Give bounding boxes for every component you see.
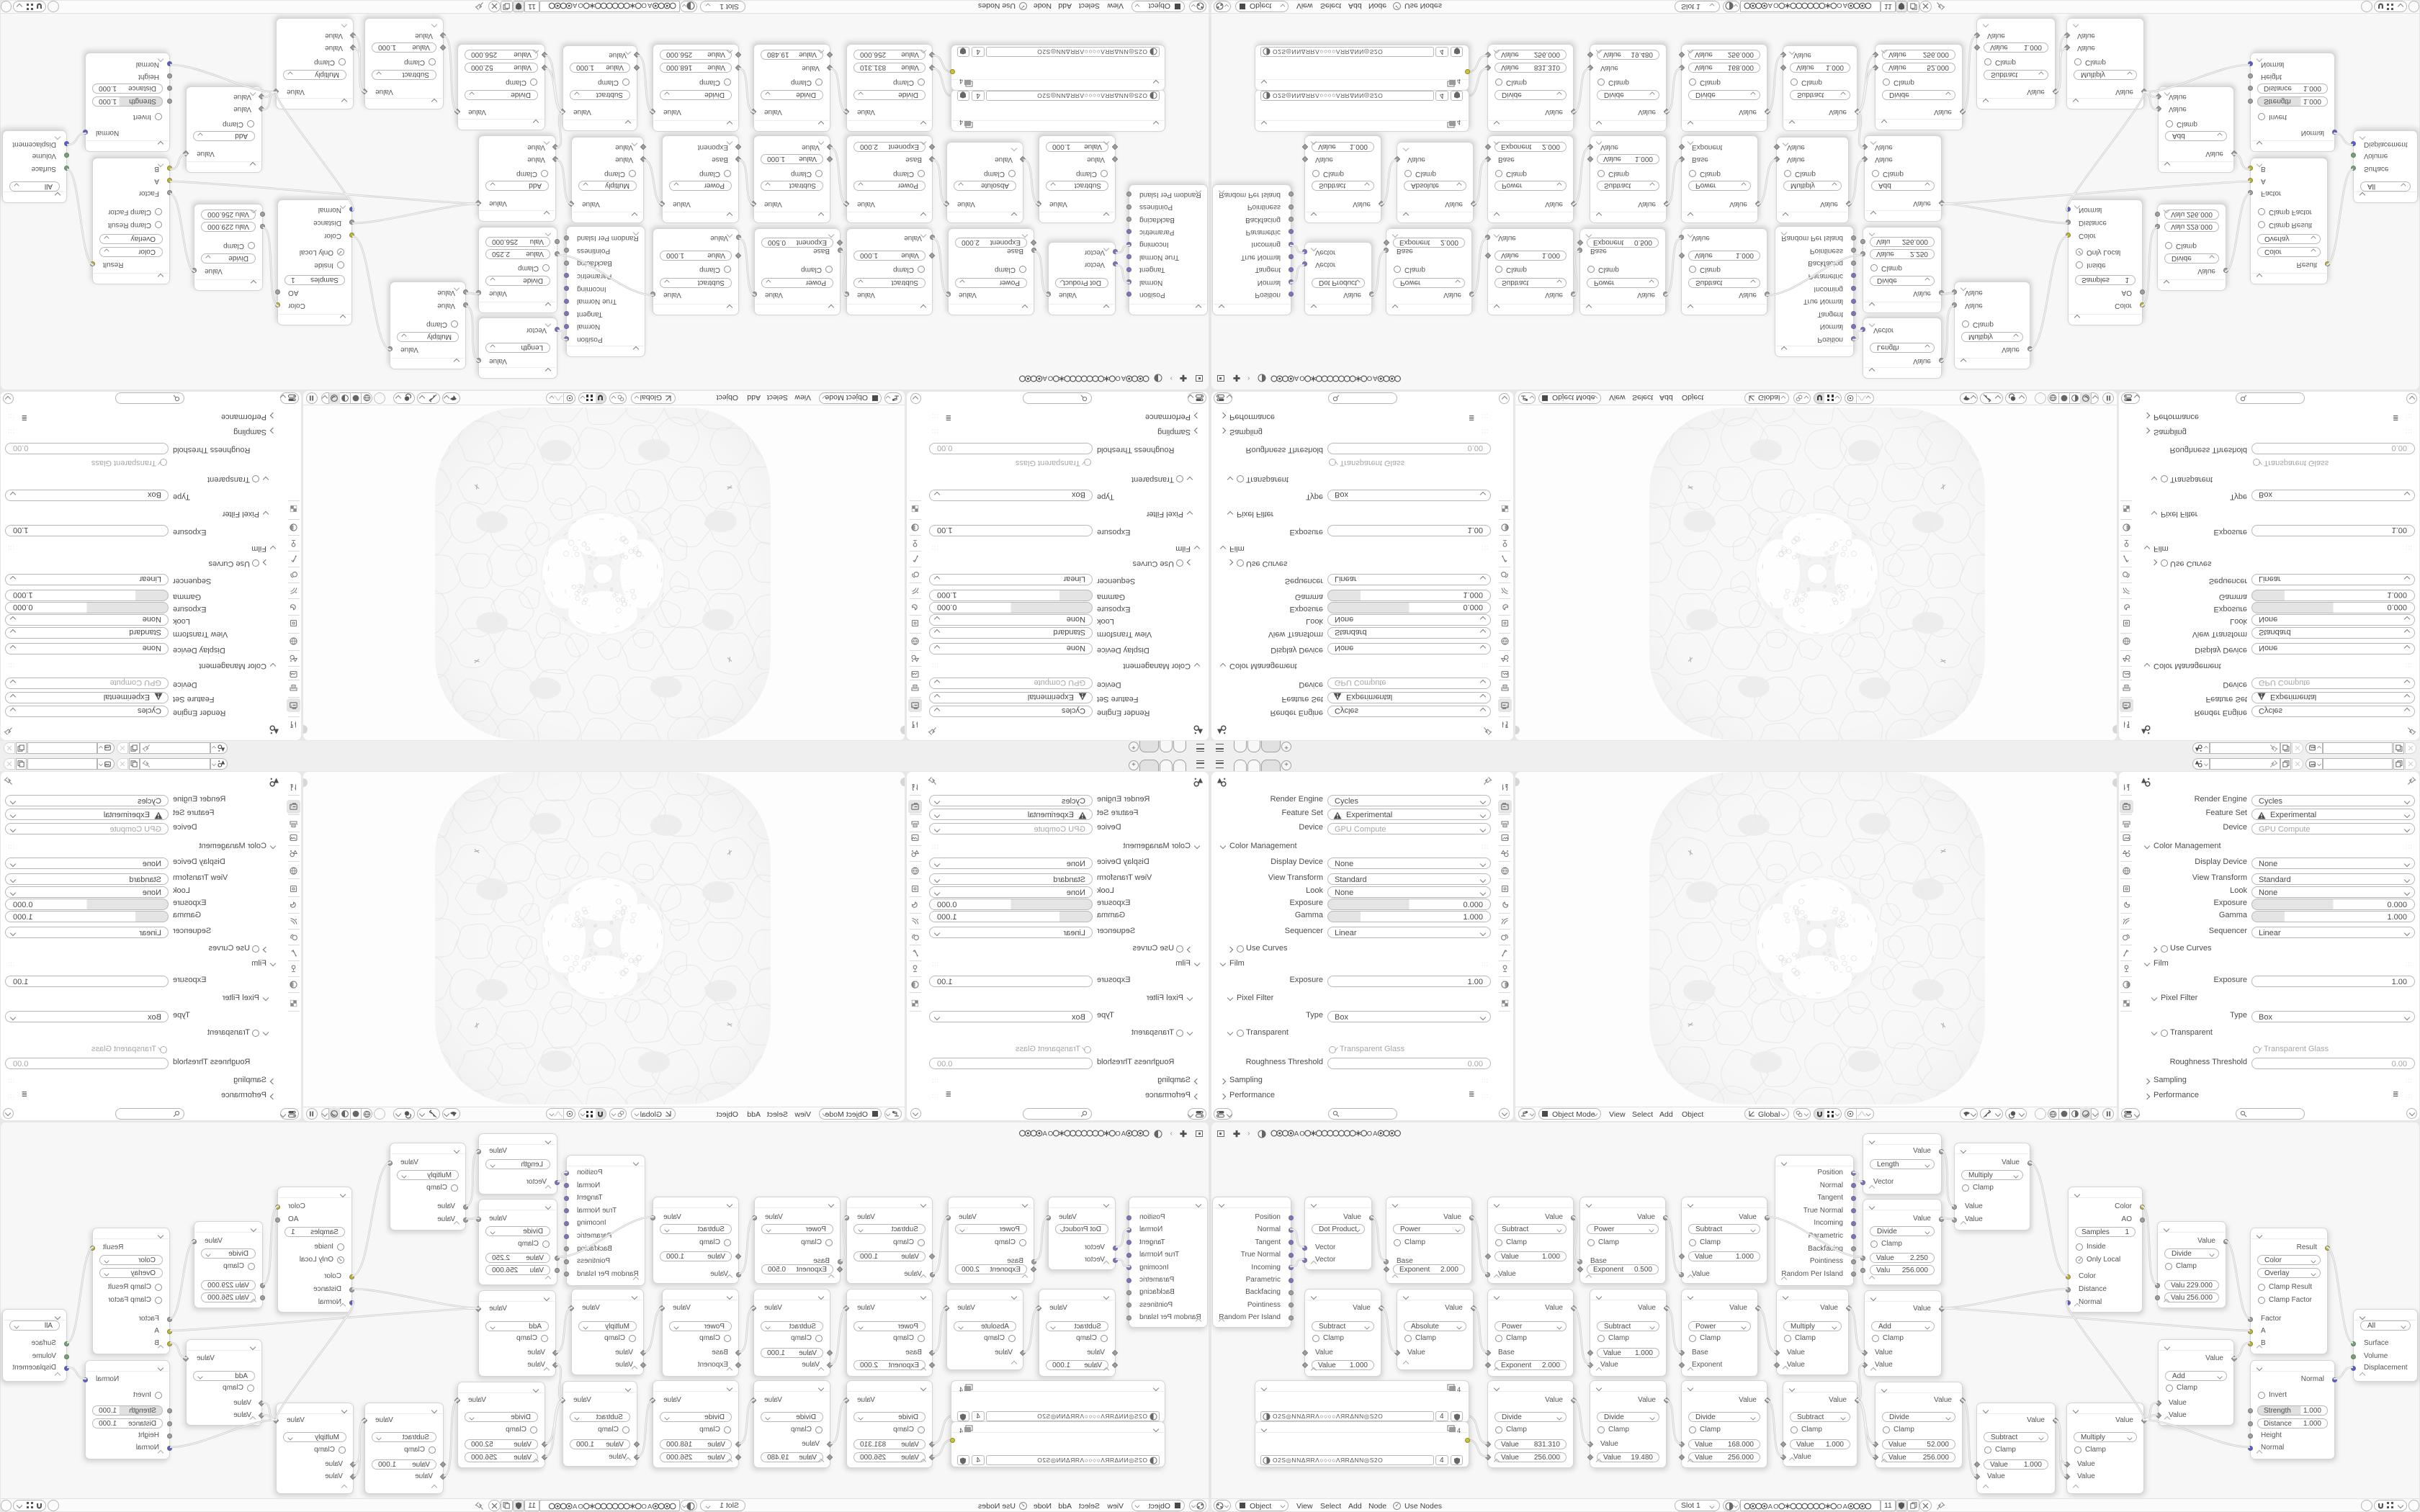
svg-text:4: 4: [1457, 120, 1461, 126]
svg-text:A: A: [647, 1503, 652, 1511]
svg-text:4: 4: [959, 1427, 963, 1434]
svg-text:A: A: [572, 1, 577, 9]
svg-text:4: 4: [1457, 78, 1461, 85]
svg-text:O: O: [1837, 1, 1842, 9]
svg-text:A: A: [1768, 1503, 1773, 1511]
svg-text:4: 4: [959, 120, 963, 126]
svg-text:O: O: [578, 1503, 583, 1511]
svg-text:O: O: [578, 1, 583, 9]
svg-text:4: 4: [1457, 1386, 1461, 1392]
svg-text:O: O: [642, 1, 647, 9]
svg-text:4: 4: [1457, 1427, 1461, 1434]
svg-text:A: A: [647, 1, 652, 9]
svg-text:A: A: [1843, 1, 1848, 9]
svg-text:4: 4: [959, 78, 963, 85]
svg-text:O: O: [1837, 1503, 1842, 1511]
svg-text:O: O: [1773, 1, 1778, 9]
svg-text:A: A: [1843, 1503, 1848, 1511]
svg-text:O: O: [642, 1503, 647, 1511]
svg-text:4: 4: [959, 1386, 963, 1392]
svg-text:A: A: [1768, 1, 1773, 9]
svg-text:O: O: [1773, 1503, 1778, 1511]
svg-text:A: A: [572, 1503, 577, 1511]
